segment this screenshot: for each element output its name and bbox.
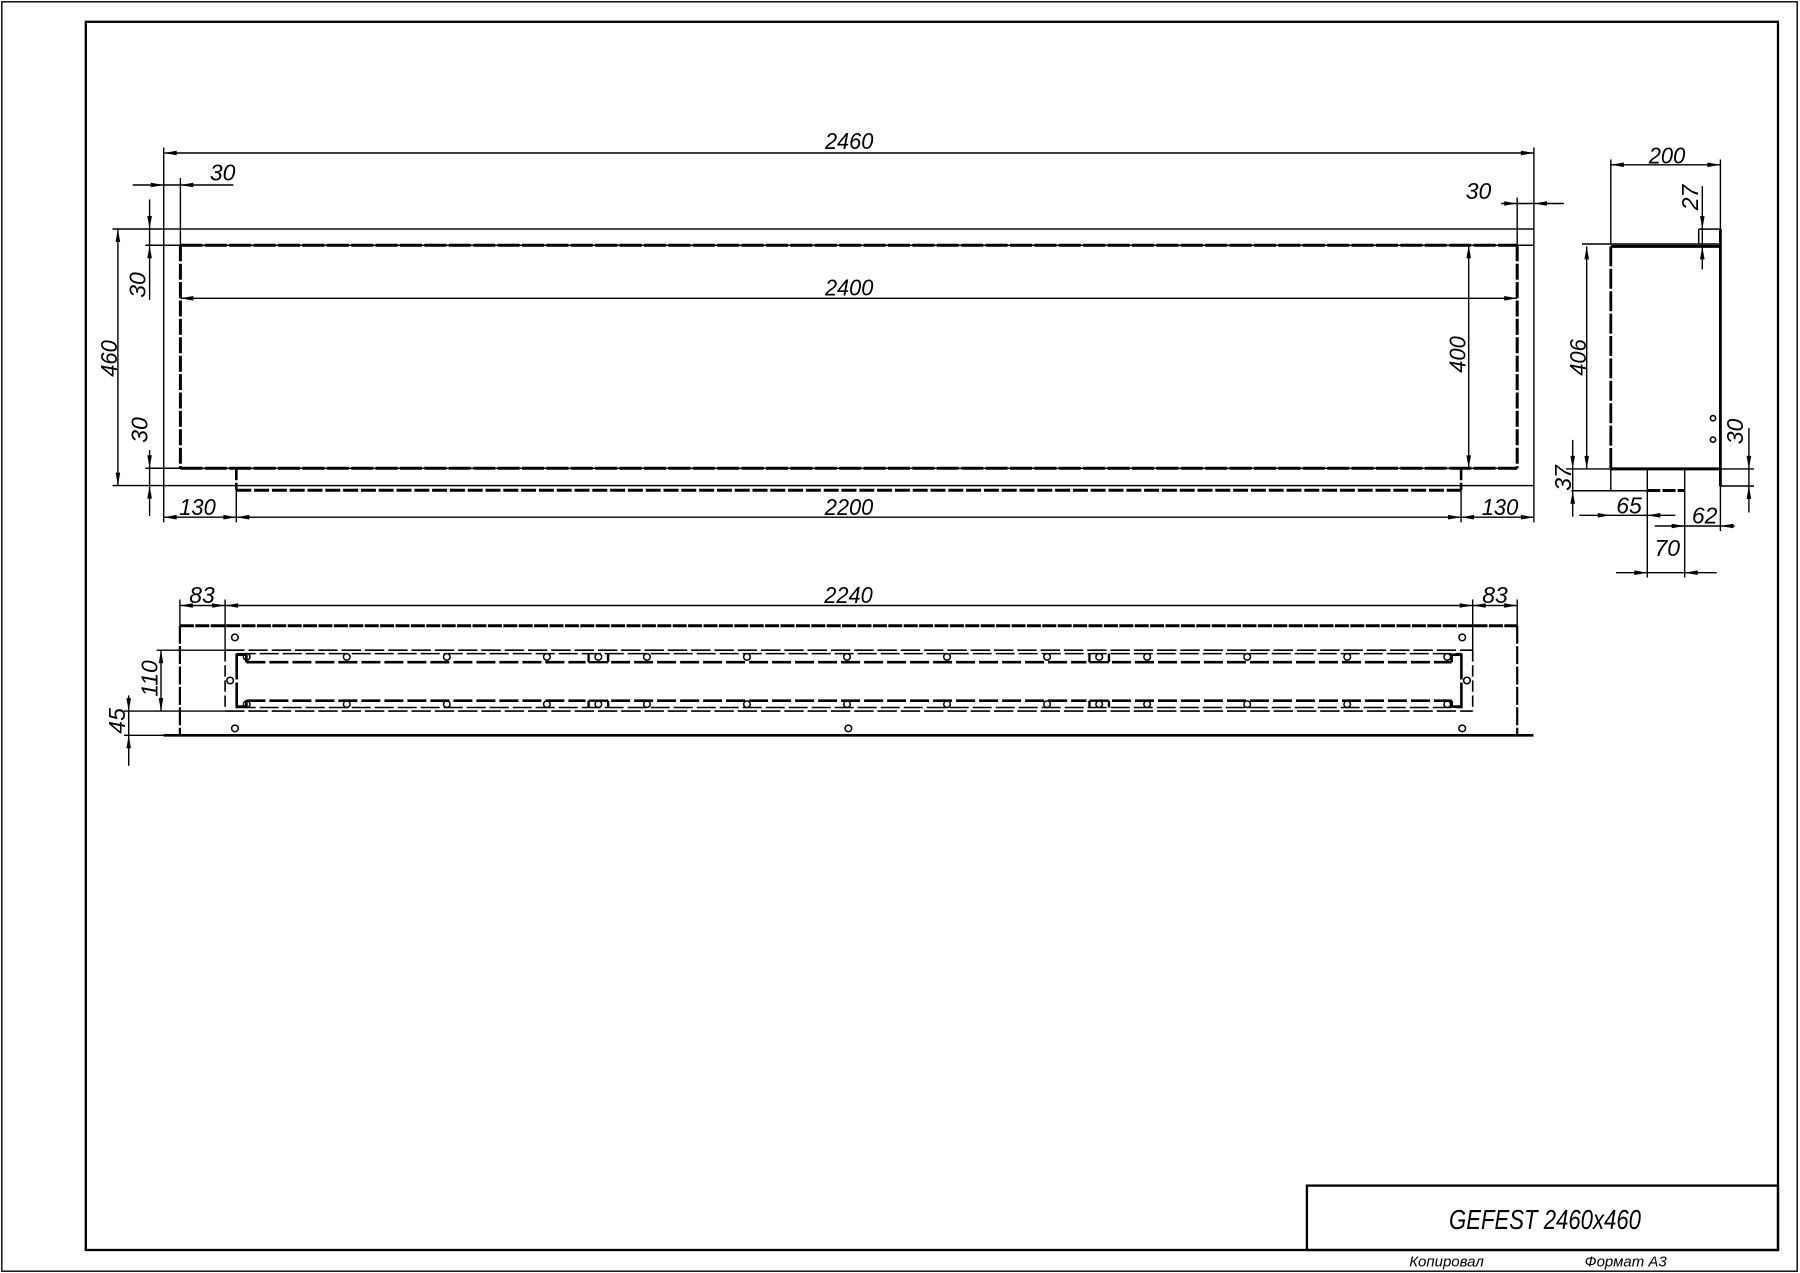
svg-text:30: 30 <box>1722 419 1748 445</box>
svg-text:45: 45 <box>104 708 130 734</box>
svg-text:2400: 2400 <box>824 275 874 301</box>
svg-text:30: 30 <box>126 417 152 443</box>
svg-text:62: 62 <box>1692 503 1718 529</box>
svg-text:Формат А3: Формат А3 <box>1585 1254 1668 1271</box>
svg-text:83: 83 <box>189 582 215 608</box>
svg-text:406: 406 <box>1565 339 1591 376</box>
svg-text:30: 30 <box>1466 178 1492 204</box>
svg-text:27: 27 <box>1677 184 1703 212</box>
svg-text:200: 200 <box>1648 142 1686 168</box>
svg-text:30: 30 <box>124 272 150 298</box>
svg-text:83: 83 <box>1482 582 1508 608</box>
svg-text:400: 400 <box>1444 336 1470 373</box>
svg-text:70: 70 <box>1655 535 1681 561</box>
svg-text:2240: 2240 <box>823 582 873 608</box>
svg-text:130: 130 <box>1482 494 1519 520</box>
svg-text:30: 30 <box>210 160 236 186</box>
svg-text:37: 37 <box>1550 464 1576 491</box>
svg-text:2460: 2460 <box>824 128 874 154</box>
svg-text:110: 110 <box>136 660 162 697</box>
svg-text:2200: 2200 <box>824 494 874 520</box>
svg-text:130: 130 <box>179 494 216 520</box>
svg-text:460: 460 <box>96 340 122 377</box>
svg-text:GEFEST 2460x460: GEFEST 2460x460 <box>1449 1204 1641 1235</box>
svg-text:Копировал: Копировал <box>1409 1254 1484 1271</box>
svg-text:65: 65 <box>1616 492 1642 518</box>
